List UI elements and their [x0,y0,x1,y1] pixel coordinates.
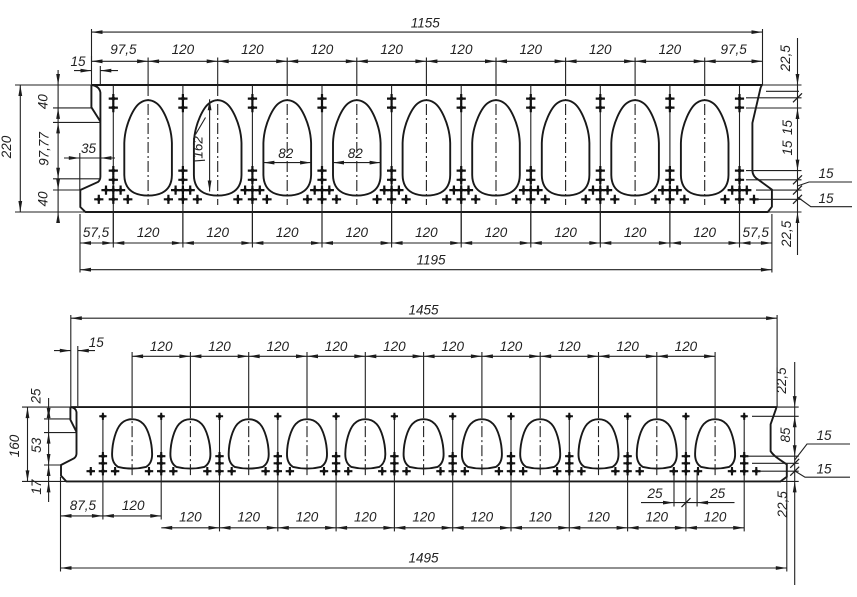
svg-text:120: 120 [122,498,145,513]
svg-text:1455: 1455 [408,303,439,318]
svg-text:120: 120 [267,339,290,354]
svg-text:120: 120 [624,225,647,240]
svg-text:15: 15 [818,166,834,181]
svg-text:120: 120 [150,339,173,354]
svg-text:1495: 1495 [408,551,439,566]
svg-text:35: 35 [81,141,97,156]
svg-text:22,5: 22,5 [775,491,790,519]
svg-text:120: 120 [415,225,438,240]
svg-text:1155: 1155 [411,16,441,31]
svg-text:120: 120 [693,225,716,240]
svg-text:15: 15 [818,191,834,206]
svg-text:120: 120 [383,339,406,354]
svg-text:97,5: 97,5 [720,42,747,57]
svg-text:120: 120 [587,510,610,525]
svg-text:120: 120 [646,510,669,525]
svg-text:120: 120 [311,42,334,57]
svg-text:15: 15 [816,428,832,443]
svg-text:22,5: 22,5 [778,45,793,73]
svg-text:120: 120 [206,225,229,240]
svg-text:120: 120 [276,225,299,240]
svg-text:57,5: 57,5 [83,225,110,240]
svg-text:120: 120 [529,510,552,525]
svg-text:120: 120 [589,42,612,57]
svg-text:120: 120 [471,510,494,525]
svg-text:120: 120 [554,225,577,240]
svg-text:120: 120 [675,339,698,354]
svg-text:160: 160 [7,434,22,457]
svg-text:120: 120 [137,225,160,240]
svg-text:22,5: 22,5 [774,367,789,395]
svg-text:120: 120 [296,510,319,525]
svg-text:120: 120 [500,339,523,354]
svg-text:120: 120 [441,339,464,354]
svg-text:17: 17 [29,479,44,495]
svg-text:97,77: 97,77 [37,132,52,166]
svg-text:82: 82 [348,146,364,161]
svg-text:15: 15 [89,335,105,350]
svg-text:15: 15 [780,120,795,136]
svg-text:40: 40 [36,94,51,110]
svg-text:22,5: 22,5 [779,220,794,248]
svg-text:97,5: 97,5 [110,42,137,57]
svg-text:1195: 1195 [416,253,446,268]
svg-text:120: 120 [172,42,195,57]
svg-text:120: 120 [380,42,403,57]
svg-text:40: 40 [36,191,51,207]
svg-text:15: 15 [70,54,86,69]
svg-text:220: 220 [0,135,14,159]
svg-text:120: 120 [558,339,581,354]
svg-text:120: 120 [346,225,369,240]
svg-text:120: 120 [450,42,473,57]
svg-text:15: 15 [816,462,832,477]
svg-text:120: 120 [237,510,260,525]
svg-text:25: 25 [29,388,44,405]
svg-text:120: 120 [325,339,348,354]
svg-text:120: 120 [485,225,508,240]
svg-text:120: 120 [704,510,727,525]
svg-text:120: 120 [616,339,639,354]
svg-text:120: 120 [208,339,231,354]
svg-text:87,5: 87,5 [70,498,97,513]
svg-text:53: 53 [29,437,44,453]
svg-text:85: 85 [778,427,793,443]
svg-text:120: 120 [520,42,543,57]
svg-text:120: 120 [241,42,264,57]
svg-text:162: 162 [191,136,206,159]
svg-text:120: 120 [179,510,202,525]
svg-text:120: 120 [354,510,377,525]
svg-text:57,5: 57,5 [743,225,770,240]
svg-text:120: 120 [412,510,435,525]
svg-text:82: 82 [278,146,294,161]
svg-text:25: 25 [646,486,663,501]
svg-text:25: 25 [709,486,726,501]
svg-text:120: 120 [659,42,682,57]
svg-text:15: 15 [780,140,795,156]
